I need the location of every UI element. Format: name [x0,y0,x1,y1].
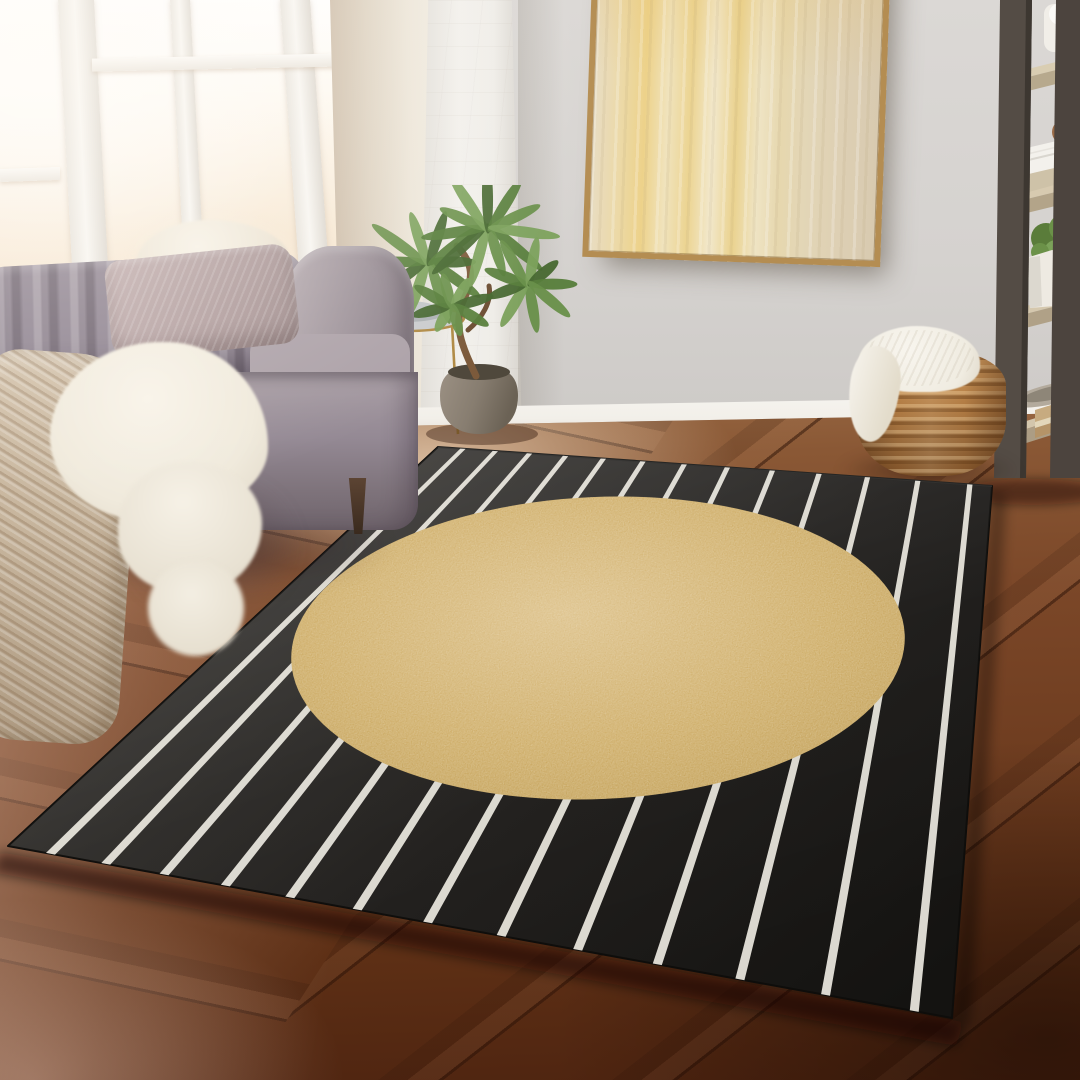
mauve-lumbar-pillow [103,242,300,361]
mauve-pillow-texture [103,242,300,361]
white-fur-throw-tail [148,560,244,656]
living-room-scene [0,0,1080,1080]
framed-abstract-painting [582,0,891,267]
window-frame-bar [0,167,60,182]
painting-brushstrokes [588,0,885,261]
